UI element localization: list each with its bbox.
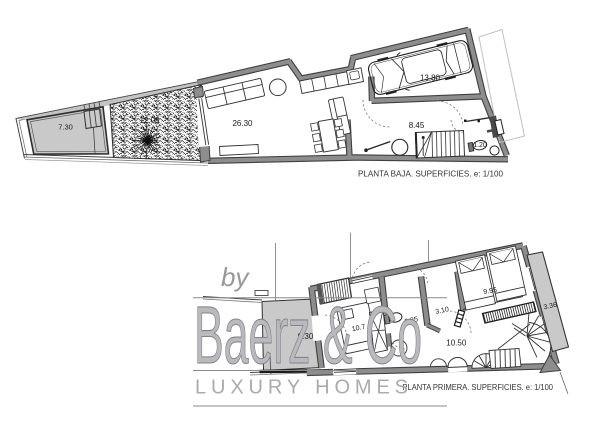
svg-text:26.30: 26.30 xyxy=(232,119,253,128)
svg-text:PLANTA PRIMERA. SUPERFICIES. e: PLANTA PRIMERA. SUPERFICIES. e: 1/100 xyxy=(403,382,554,392)
svg-text:by: by xyxy=(221,262,250,292)
svg-text:7.30: 7.30 xyxy=(58,123,73,132)
svg-text:PLANTA BAJA. SUPERFICIES. e: 1: PLANTA BAJA. SUPERFICIES. e: 1/100 xyxy=(358,169,503,179)
svg-text:8.45: 8.45 xyxy=(409,121,425,130)
svg-text:1.20: 1.20 xyxy=(473,142,487,149)
svg-text:13.80: 13.80 xyxy=(420,74,441,83)
svg-text:12.08: 12.08 xyxy=(139,116,160,125)
svg-text:10.50: 10.50 xyxy=(446,339,467,348)
svg-text:Baerz & Co: Baerz & Co xyxy=(194,290,422,381)
